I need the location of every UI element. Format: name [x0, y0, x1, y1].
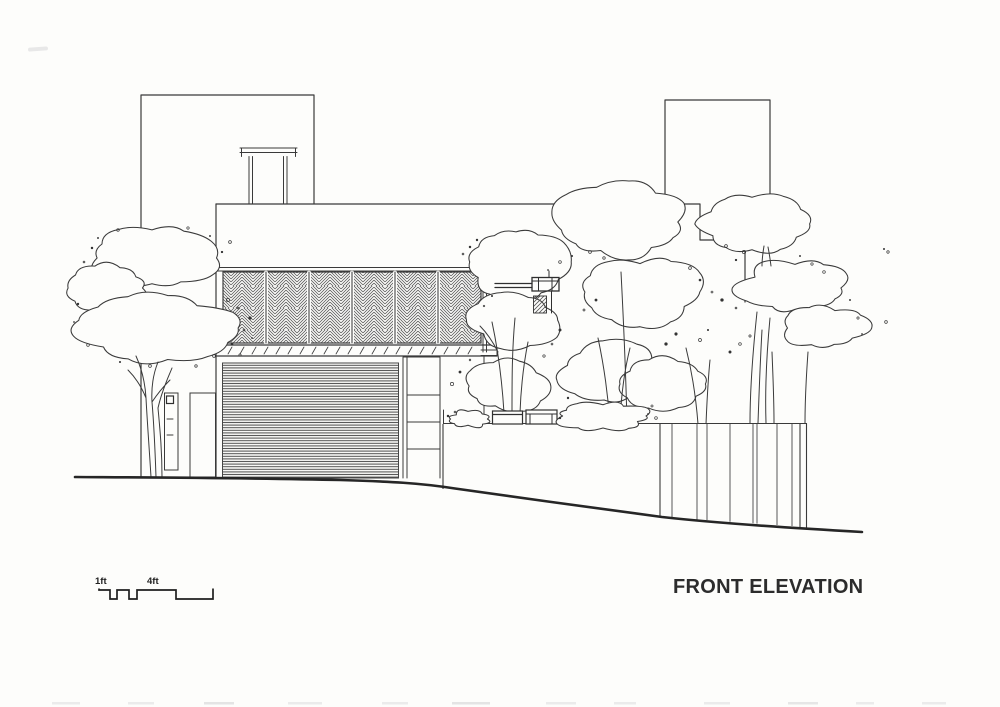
scale-label-1ft: 1ft	[95, 576, 107, 587]
leaf-speck	[559, 417, 561, 419]
leaf-speck	[450, 382, 453, 385]
tree-trunks	[128, 356, 172, 477]
leaf-speck	[739, 343, 742, 346]
leaf-speck	[239, 354, 241, 356]
leaf-speck	[655, 417, 658, 420]
right-tree-cluster	[450, 181, 889, 424]
leaf-speck	[77, 303, 79, 305]
leaf-speck	[491, 295, 493, 297]
leaf-speck	[469, 359, 471, 361]
leaf-speck	[735, 307, 737, 309]
garage-door	[223, 363, 399, 478]
leaf-speck	[551, 343, 553, 345]
leaf-speck	[603, 257, 606, 260]
leaf-speck	[251, 337, 253, 339]
leaf-speck	[73, 321, 75, 323]
leaf-speck	[149, 365, 152, 368]
planter-boxes	[493, 410, 558, 424]
leaf-speck	[83, 261, 85, 263]
leaf-speck	[454, 411, 456, 413]
leaf-speck	[547, 269, 549, 271]
leaf-speck	[883, 248, 885, 250]
leaf-speck	[231, 343, 234, 346]
leaf-speck	[799, 255, 801, 257]
terrace-wall-fence	[443, 402, 807, 527]
leaf-speck	[664, 342, 667, 345]
utility-panel	[165, 393, 179, 470]
leaf-speck	[447, 415, 449, 417]
leaf-speck	[209, 235, 211, 237]
leaf-speck	[707, 329, 709, 331]
leaf-speck	[248, 316, 251, 319]
leaf-speck	[221, 251, 223, 253]
elevation-drawing	[0, 0, 1000, 707]
leaf-speck	[476, 239, 478, 241]
scale-label-4ft: 4ft	[147, 576, 159, 587]
leaf-speck	[229, 241, 232, 244]
leaf-speck	[720, 298, 723, 301]
leaf-speck	[699, 279, 702, 282]
scale-bar	[99, 589, 213, 600]
tree-canopy	[785, 305, 873, 347]
timber-screen	[223, 272, 481, 343]
leaf-speck	[583, 309, 585, 311]
leaf-speck	[567, 397, 569, 399]
tree-canopy	[556, 402, 650, 431]
leaf-speck	[195, 365, 198, 368]
right-volume-outline	[665, 100, 770, 206]
leaf-speck	[543, 355, 545, 357]
side-steps	[403, 357, 444, 478]
leaf-speck	[459, 371, 462, 374]
leaf-speck	[91, 247, 93, 249]
leaf-speck	[711, 291, 713, 293]
tree-canopy	[695, 194, 811, 253]
tree-canopy	[732, 260, 848, 311]
roof-skylight	[240, 148, 297, 204]
leaf-speck	[849, 299, 851, 301]
leaf-speck	[887, 251, 889, 253]
scan-artifacts	[52, 702, 946, 705]
leaf-speck	[749, 335, 751, 337]
leaf-speck	[699, 339, 702, 342]
tree-canopy	[583, 258, 704, 328]
drawing-title: FRONT ELEVATION	[673, 576, 863, 599]
tree-canopy	[466, 358, 551, 412]
side-door	[190, 393, 216, 477]
leaf-speck	[595, 299, 598, 302]
leaf-speck	[729, 351, 732, 354]
leaf-speck	[559, 329, 562, 332]
leaf-speck	[647, 413, 649, 415]
leaf-speck	[187, 227, 189, 229]
leaf-speck	[97, 237, 99, 239]
leaf-speck	[674, 332, 677, 335]
leaf-speck	[469, 246, 471, 248]
elevation-sheet: FRONT ELEVATION 1ft 4ft	[0, 0, 1000, 707]
leaf-speck	[571, 255, 573, 257]
leaf-speck	[462, 253, 464, 255]
floor-band	[216, 345, 497, 356]
leaf-speck	[119, 361, 121, 363]
leaf-speck	[735, 259, 737, 261]
leaf-speck	[885, 321, 888, 324]
leaf-speck	[861, 333, 863, 335]
